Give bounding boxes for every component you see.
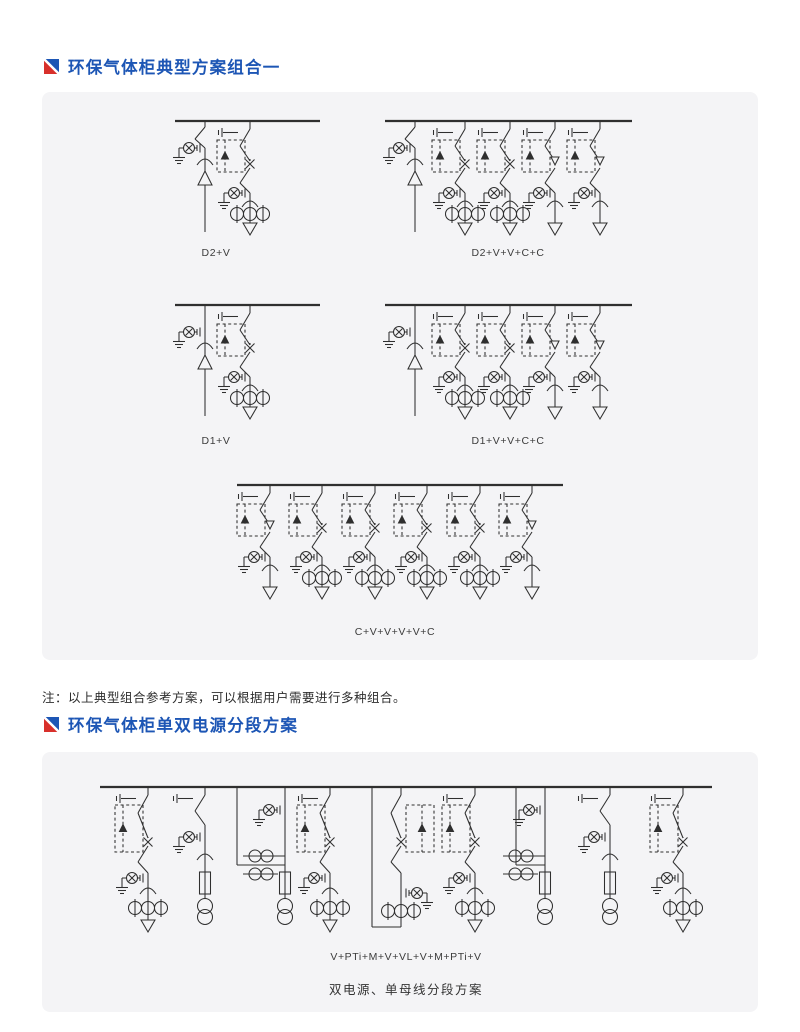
diagram-label-d1vvcc: D1+V+V+C+C	[471, 435, 544, 447]
feeder-breaker-branch	[217, 305, 270, 419]
schematic-D2+V	[173, 121, 320, 235]
feeder-breaker-branch	[342, 485, 395, 599]
note-text: 注：以上典型组合参考方案，可以根据用户需要进行多种组合。	[42, 687, 406, 706]
feeder-contactor-branch	[567, 121, 608, 235]
feeder-breaker-branch	[115, 787, 168, 932]
feeder-breaker-branch	[650, 787, 703, 932]
feeder-breaker-branch	[477, 305, 530, 419]
feeder-breaker-branch	[394, 485, 447, 599]
feeder-contactor-branch	[237, 485, 278, 599]
scheme-name-label: 双电源、单母线分段方案	[329, 979, 483, 998]
diagram-label-d2vvcc: D2+V+V+C+C	[471, 247, 544, 259]
feeder-breaker-branch	[447, 485, 500, 599]
incoming-branch-d1	[383, 305, 423, 416]
feeder-breaker-branch	[289, 485, 342, 599]
flag-icon	[44, 59, 59, 74]
sectionalized-schematic	[42, 752, 758, 1012]
incoming-branch-d1	[173, 305, 213, 416]
schematic-V+PTi+M+V+VL+V+M+PTi+V	[100, 787, 712, 932]
incoming-branch-d2	[173, 121, 213, 232]
typical-schemes-panel: D2+V D2+V+V+C+C D1+V D1+V+V+C+C C+V+V+V+…	[42, 92, 758, 660]
catalog-page: 环保气体柜典型方案组合一 D2+V D2+V+V+C+C D1+V D1+V+V…	[0, 0, 800, 1032]
section-header-2: 环保气体柜单双电源分段方案	[44, 712, 298, 736]
schematic-C+V+V+V+V+C	[237, 485, 563, 599]
feeder-breaker-branch	[442, 787, 495, 932]
feeder-breaker-branch	[217, 121, 270, 235]
diagram-label-d2v: D2+V	[202, 247, 231, 259]
metering-branch	[237, 787, 293, 925]
pt-fuse-branch	[578, 787, 618, 925]
feeder-breaker-branch	[432, 305, 485, 419]
schematic-D1+V	[173, 305, 320, 419]
metering-branch	[503, 787, 553, 925]
feeder-contactor-branch	[567, 305, 608, 419]
section-title: 环保气体柜典型方案组合一	[68, 54, 280, 78]
pt-fuse-branch	[173, 787, 213, 925]
flag-icon	[44, 717, 59, 732]
incoming-branch-d2	[383, 121, 423, 232]
section-title: 环保气体柜单双电源分段方案	[68, 712, 298, 736]
bus-tie-branch	[372, 787, 434, 927]
feeder-contactor-branch	[499, 485, 540, 599]
typical-schemes-schematic	[42, 92, 758, 660]
sectionalized-scheme-panel: V+PTi+M+V+VL+V+M+PTi+V 双电源、单母线分段方案	[42, 752, 758, 1012]
feeder-breaker-branch	[477, 121, 530, 235]
diagram-label-d1v: D1+V	[202, 435, 231, 447]
diagram-label-cvvvvc: C+V+V+V+V+C	[355, 626, 435, 638]
schematic-D1+V+V+C+C	[383, 305, 632, 419]
feeder-breaker-branch	[297, 787, 350, 932]
scheme-code-label: V+PTi+M+V+VL+V+M+PTi+V	[330, 951, 481, 963]
schematic-D2+V+V+C+C	[383, 121, 632, 235]
feeder-breaker-branch	[432, 121, 485, 235]
section-header-1: 环保气体柜典型方案组合一	[44, 54, 280, 78]
